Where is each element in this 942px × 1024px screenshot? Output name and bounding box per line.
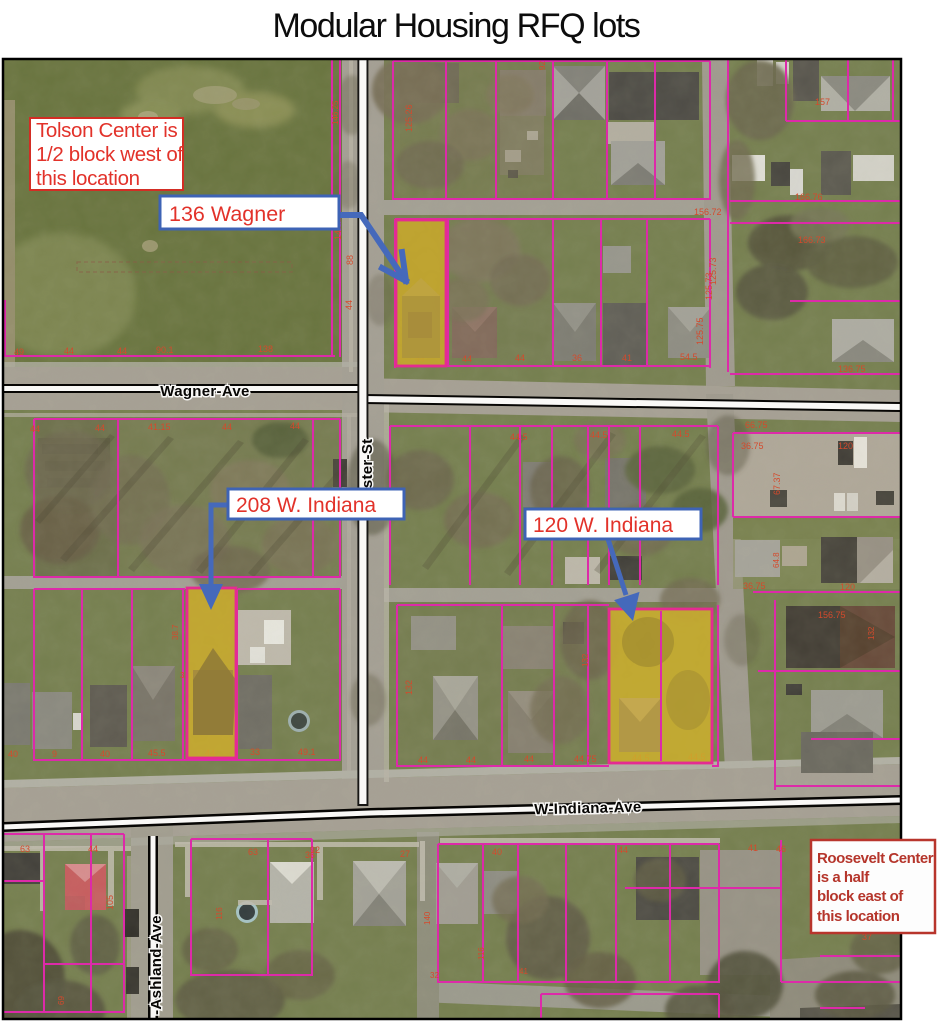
svg-text:is a half: is a half <box>817 869 870 886</box>
svg-text:this location: this location <box>817 908 900 925</box>
svg-text:block east of: block east of <box>817 888 904 905</box>
svg-text:Roosevelt Center: Roosevelt Center <box>817 850 934 867</box>
svg-text:208 W. Indiana: 208 W. Indiana <box>236 494 376 517</box>
svg-text:120 W. Indiana: 120 W. Indiana <box>533 514 673 537</box>
svg-text:this location: this location <box>36 167 140 190</box>
svg-text:136 Wagner: 136 Wagner <box>169 202 285 226</box>
svg-text:1/2 block west of: 1/2 block west of <box>36 143 183 166</box>
svg-text:Tolson Center is: Tolson Center is <box>36 119 177 142</box>
svg-text:Modular Housing RFQ lots: Modular Housing RFQ lots <box>273 7 640 45</box>
